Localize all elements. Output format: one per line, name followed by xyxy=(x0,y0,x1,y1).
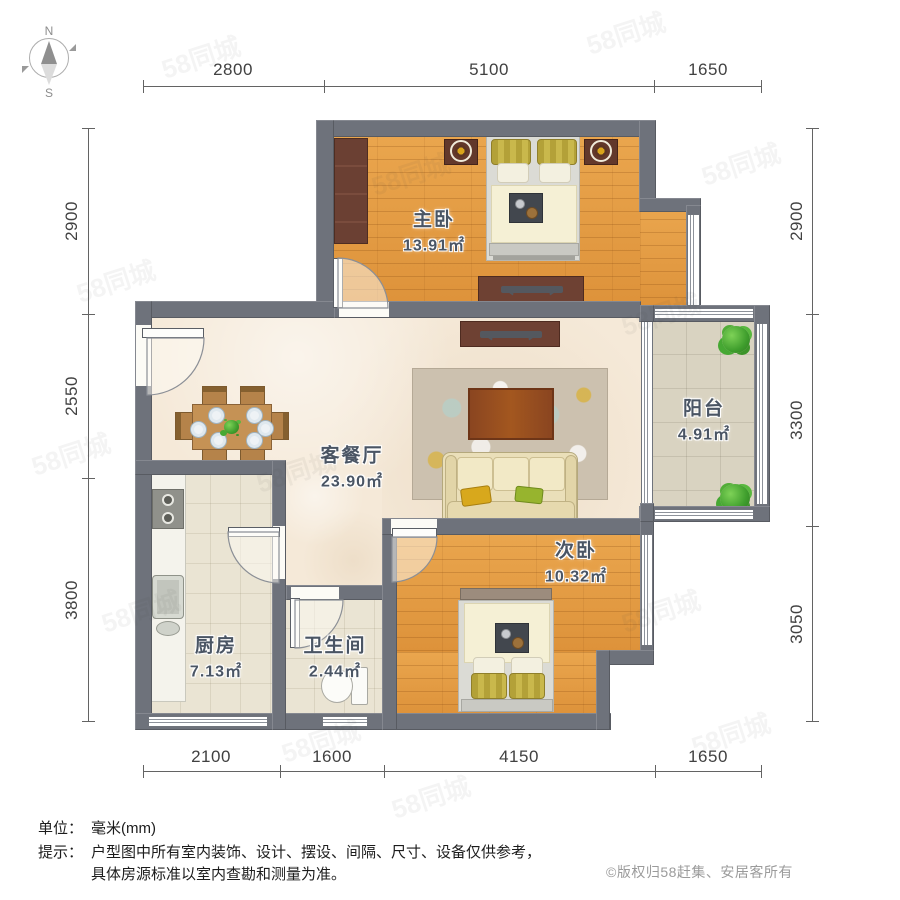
lamp-icon xyxy=(450,140,472,162)
compass-arrow-left-icon xyxy=(22,66,29,73)
watermark-text: 58同城 xyxy=(581,2,669,62)
tv-cabinet-living xyxy=(460,321,560,347)
tip-label: 提示： xyxy=(38,842,83,886)
dim-tick xyxy=(806,721,819,722)
pillow xyxy=(497,163,529,183)
sofa xyxy=(442,452,578,525)
wall-bedroom2-left xyxy=(382,518,397,730)
dim-tick xyxy=(82,314,95,315)
bathroom-door-leaf xyxy=(290,598,300,648)
dim-tick xyxy=(654,80,655,93)
dim-tick xyxy=(806,128,819,129)
dim-line-right xyxy=(812,128,813,722)
master-bed xyxy=(486,136,580,261)
compass-needle-south xyxy=(41,64,57,85)
entry-door-leaf xyxy=(142,328,204,338)
dim-bottom-2: 1600 xyxy=(312,747,352,767)
tip-line1: 户型图中所有室内装饰、设计、摆设、间隔、尺寸、设备仅供参考， xyxy=(91,844,541,861)
pillow xyxy=(539,163,571,183)
tip-text: 户型图中所有室内装饰、设计、摆设、间隔、尺寸、设备仅供参考， 具体房源标准以室内… xyxy=(91,842,541,886)
dim-right-1: 2900 xyxy=(787,201,807,241)
tray-item xyxy=(526,207,538,219)
coffee-table xyxy=(468,388,554,440)
window-bedroom2-right xyxy=(641,534,653,646)
sliding-door-balcony xyxy=(641,307,653,518)
dim-right-3: 3050 xyxy=(787,604,807,644)
dim-left-3: 3800 xyxy=(62,580,82,620)
dim-bottom-1: 2100 xyxy=(191,747,231,767)
dim-tick xyxy=(82,721,95,722)
wall-top-master xyxy=(316,120,656,137)
pillow xyxy=(509,673,545,699)
dim-left-2: 2550 xyxy=(62,376,82,416)
tip-line2: 具体房源标准以室内查勘和测量为准。 xyxy=(91,866,346,883)
room-label-balcony: 阳台 4.91㎡ xyxy=(678,394,730,445)
dim-tick xyxy=(806,314,819,315)
compass-needle-north xyxy=(41,41,57,64)
dim-line-top xyxy=(143,86,762,87)
wall-bedroom2-step-v xyxy=(596,650,610,730)
room-area: 23.90㎡ xyxy=(320,468,383,492)
pillow xyxy=(471,673,507,699)
dim-tick xyxy=(143,80,144,93)
room-area: 2.44㎡ xyxy=(303,658,366,682)
window-kitchen xyxy=(148,716,268,727)
wardrobe xyxy=(334,138,368,244)
kitchen-door-leaf xyxy=(228,527,280,537)
room-name: 阳台 xyxy=(678,394,730,421)
bed-footboard xyxy=(489,243,579,256)
dim-bottom-3: 4150 xyxy=(499,747,539,767)
unit-row: 单位： 毫米(mm) xyxy=(38,818,541,840)
pillow xyxy=(491,139,531,165)
room-name: 卫生间 xyxy=(303,631,366,658)
dim-tick xyxy=(806,526,819,527)
unit-label: 单位： xyxy=(38,818,83,840)
tray-item xyxy=(515,199,525,209)
window-master-right xyxy=(687,214,700,306)
dim-line-left xyxy=(88,128,89,722)
kitchen-sink xyxy=(152,575,184,619)
bed-bench xyxy=(460,588,552,600)
second-bed xyxy=(458,600,554,712)
room-area: 7.13㎡ xyxy=(190,658,242,682)
burner-icon xyxy=(162,494,174,506)
floor-master-bedroom-ext xyxy=(640,206,690,308)
room-name: 客餐厅 xyxy=(320,441,383,468)
compass-south-label: S xyxy=(43,86,55,100)
bed-foot-strip xyxy=(493,256,575,260)
room-area: 13.91㎡ xyxy=(403,232,465,256)
sliding-door-cap xyxy=(640,305,654,322)
dim-tick xyxy=(384,765,385,778)
dim-top-3: 1650 xyxy=(688,60,728,80)
dim-tick xyxy=(324,80,325,93)
plate xyxy=(190,421,207,438)
dim-tick xyxy=(761,765,762,778)
dim-top-1: 2800 xyxy=(213,60,253,80)
tray-item xyxy=(512,637,524,649)
plate xyxy=(246,432,263,449)
footer-notes: 单位： 毫米(mm) 提示： 户型图中所有室内装饰、设计、摆设、间隔、尺寸、设备… xyxy=(38,818,541,888)
dining-chair xyxy=(240,386,265,405)
compass: N S xyxy=(22,24,76,100)
dim-tick xyxy=(655,765,656,778)
window-balcony-right xyxy=(756,323,768,505)
room-name: 次卧 xyxy=(545,536,607,563)
wall-master-left xyxy=(316,120,334,318)
room-name: 厨房 xyxy=(190,631,242,658)
room-label-master: 主卧 13.91㎡ xyxy=(403,205,465,256)
dim-bottom-4: 1650 xyxy=(688,747,728,767)
window-balcony-top xyxy=(654,308,754,319)
bedroom2-door-leaf xyxy=(392,528,437,538)
wall-kitchen-right xyxy=(272,460,286,730)
room-name: 主卧 xyxy=(403,205,465,232)
table-plant-icon xyxy=(224,420,239,434)
sliding-door-cap xyxy=(640,503,654,522)
room-label-kitchen: 厨房 7.13㎡ xyxy=(190,631,242,682)
master-door-opening xyxy=(339,302,389,317)
lamp-icon xyxy=(590,140,612,162)
copyright-text: ©版权归58赶集、安居客所有 xyxy=(606,862,793,882)
dim-tick xyxy=(280,765,281,778)
dim-left-1: 2900 xyxy=(62,201,82,241)
wall-living-top xyxy=(135,301,335,318)
dim-tick xyxy=(761,80,762,93)
compass-arrow-right-icon xyxy=(69,44,76,51)
unit-value: 毫米(mm) xyxy=(91,818,156,840)
wall-kitchen-top xyxy=(135,460,286,475)
watermark-text: 58同城 xyxy=(696,133,784,193)
window-bathroom xyxy=(322,716,368,727)
dim-tick xyxy=(143,765,144,778)
room-area: 10.32㎡ xyxy=(545,563,607,587)
window-balcony-bottom xyxy=(654,509,754,520)
plate xyxy=(210,432,227,449)
dim-top-2: 5100 xyxy=(469,60,509,80)
bed-tray xyxy=(495,623,529,653)
dim-right-2: 3300 xyxy=(787,400,807,440)
compass-north-label: N xyxy=(43,24,56,38)
stove xyxy=(152,489,184,529)
room-label-second: 次卧 10.32㎡ xyxy=(545,536,607,587)
dim-line-bottom xyxy=(143,771,762,772)
burner-icon xyxy=(162,512,174,524)
sofa-pillow-green xyxy=(514,486,544,505)
tray-item xyxy=(501,629,511,639)
room-label-living: 客餐厅 23.90㎡ xyxy=(320,441,383,492)
pillow xyxy=(537,139,577,165)
bed-headboard xyxy=(461,699,553,712)
watermark-text: 58同城 xyxy=(26,423,114,483)
room-label-bathroom: 卫生间 2.44㎡ xyxy=(303,631,366,682)
kitchen-sink-bowl xyxy=(156,621,180,636)
dim-tick xyxy=(82,478,95,479)
room-area: 4.91㎡ xyxy=(678,421,730,445)
tv-cabinet-master xyxy=(478,276,584,302)
master-door-leaf xyxy=(333,258,343,308)
plate xyxy=(208,407,225,424)
dim-tick xyxy=(82,128,95,129)
balcony-plant-icon xyxy=(722,326,750,353)
dining-chair xyxy=(202,386,227,405)
sofa-cushion xyxy=(529,457,565,491)
tip-row: 提示： 户型图中所有室内装饰、设计、摆设、间隔、尺寸、设备仅供参考， 具体房源标… xyxy=(38,842,541,886)
floorplan-canvas: N S 2800 5100 1650 2100 1600 4150 1650 2… xyxy=(0,0,900,900)
bed-tray xyxy=(509,193,543,223)
